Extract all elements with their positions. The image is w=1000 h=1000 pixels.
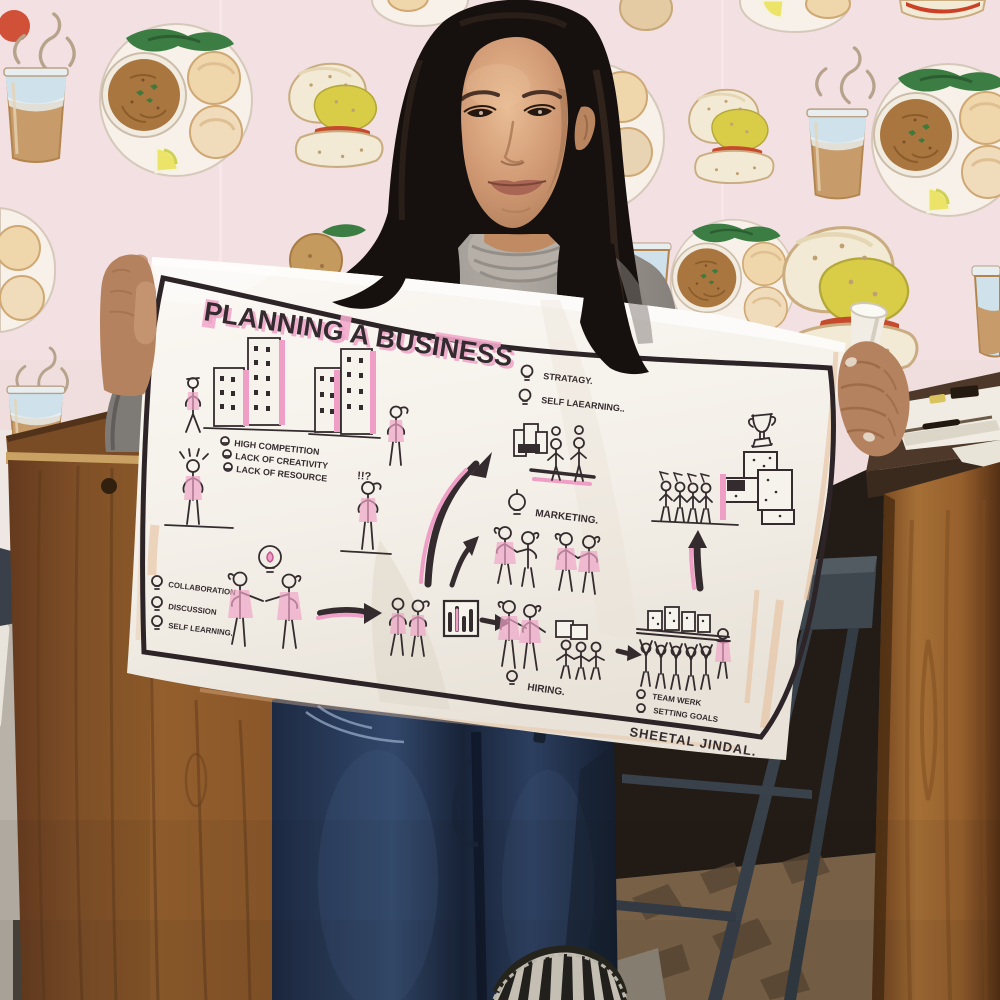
svg-text:!!?: !!? (357, 470, 372, 483)
